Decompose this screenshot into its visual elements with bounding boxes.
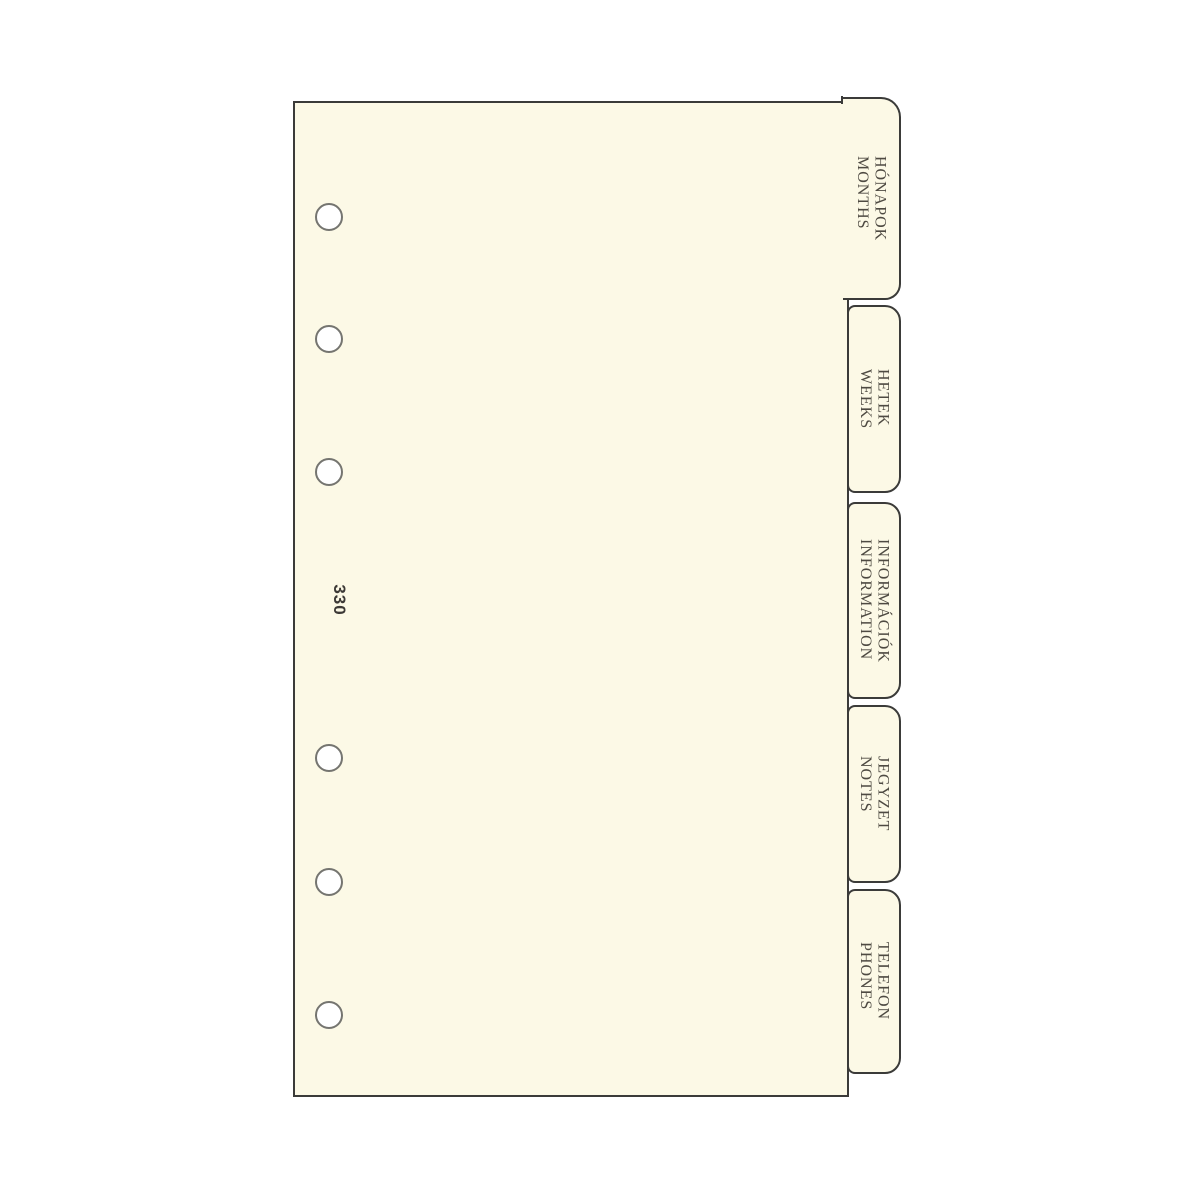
tab-label-en: WEEKS [857,369,874,429]
tab-label-hu: JEGYZET [874,756,891,831]
divider-sheet [293,101,849,1097]
punch-hole [315,458,343,486]
item-number: 330 [328,570,350,630]
tab-label-en: NOTES [857,756,874,831]
tab-label: HÓNAPOK MONTHS [854,156,889,241]
tab-label-en: PHONES [857,942,874,1020]
tab-step-outline [841,96,843,104]
tab-information: INFORMÁCIÓK INFORMATION [847,502,901,699]
punch-hole [315,203,343,231]
tab-weeks: HETEK WEEKS [847,305,901,493]
tab-label-hu: INFORMÁCIÓK [874,539,891,663]
tab-label-hu: HETEK [874,369,891,429]
tab-notes: JEGYZET NOTES [847,705,901,883]
product-image: HETEK WEEKS INFORMÁCIÓK INFORMATION JEGY… [0,0,1200,1200]
tab-label: TELEFON PHONES [857,942,892,1020]
tab-label: HETEK WEEKS [857,369,892,429]
tab-label-en: MONTHS [854,156,871,241]
tab-phones: TELEFON PHONES [847,889,901,1074]
tab-label-hu: TELEFON [874,942,891,1020]
punch-hole [315,868,343,896]
punch-hole [315,325,343,353]
tab-label-en: INFORMATION [857,539,874,663]
tab-label: INFORMÁCIÓK INFORMATION [857,539,892,663]
tab-label-hu: HÓNAPOK [871,156,888,241]
tab-label: JEGYZET NOTES [857,756,892,831]
punch-hole [315,744,343,772]
tab-months: HÓNAPOK MONTHS [843,97,901,300]
punch-hole [315,1001,343,1029]
